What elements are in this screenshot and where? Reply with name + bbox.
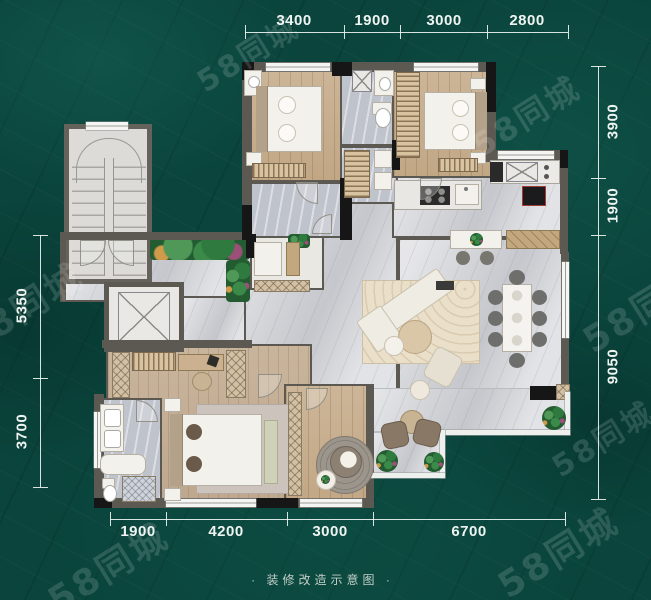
dining-chair [532, 290, 547, 305]
table-plant [321, 475, 330, 484]
dining-chair [488, 311, 503, 326]
wardrobe-bench [438, 158, 478, 172]
dining-chair [532, 311, 547, 326]
vanity-basin [104, 430, 121, 448]
dim-tick [591, 235, 606, 236]
entry-planter-vertical [226, 260, 250, 302]
dim-tick [568, 25, 569, 39]
dim-label: 3000 [300, 523, 360, 540]
terrace-railing [442, 430, 570, 435]
bed-bench [264, 420, 278, 484]
shower-area [122, 476, 156, 502]
wardrobe [396, 72, 420, 158]
dim-label: 1900 [342, 12, 402, 29]
dim-label: 3000 [414, 12, 474, 29]
island-plant [470, 233, 483, 246]
column-segment [486, 62, 496, 112]
bed-pillow [278, 124, 296, 142]
column-segment [256, 498, 298, 508]
ottoman [410, 380, 430, 400]
terrace-railing [565, 392, 570, 435]
wardrobe [288, 392, 302, 496]
dim-label: 1900 [605, 178, 622, 234]
column-segment [242, 205, 252, 240]
column-segment [530, 386, 558, 400]
window [414, 63, 478, 71]
elevator-cab [118, 292, 170, 342]
rattan-chair [330, 446, 362, 478]
window [86, 122, 128, 130]
dim-tick [591, 66, 606, 67]
wardrobe [112, 352, 130, 398]
stove-knob [544, 165, 549, 170]
window [266, 63, 330, 71]
kitchen-cabinet [490, 162, 503, 182]
bed-pillow [452, 100, 469, 117]
stove-knob [544, 174, 549, 179]
wall-segment [366, 384, 374, 504]
bed-double [170, 414, 262, 486]
dim-tick [33, 378, 48, 379]
bed-headboard [170, 414, 183, 486]
wall-segment [102, 340, 252, 348]
oven [506, 162, 538, 182]
dim-tick [287, 512, 288, 526]
window [562, 262, 569, 338]
stair-divider [104, 158, 114, 276]
bed-headboard [256, 86, 268, 152]
vanity-basin [104, 409, 121, 427]
bed-pillow [186, 424, 202, 440]
laundry-appliance [374, 150, 392, 168]
dim-tick [33, 235, 48, 236]
laundry-appliance [374, 172, 392, 190]
nightstand [164, 398, 181, 412]
terrace-plant [542, 406, 566, 430]
dim-label: 3900 [605, 94, 622, 150]
dim-label: 2800 [497, 12, 557, 29]
wall-segment [60, 232, 250, 240]
wardrobe-bench [252, 163, 306, 178]
entry-planter-horizontal [150, 238, 250, 260]
nightstand [470, 78, 486, 90]
dim-tick [487, 25, 488, 39]
side-table [384, 336, 404, 356]
window [300, 499, 362, 507]
bar-stool [480, 251, 494, 265]
dining-chair [532, 332, 547, 347]
media-console-item [436, 281, 454, 290]
dining-chair [488, 290, 503, 305]
bed-pillow [278, 96, 296, 114]
column-segment [560, 150, 568, 168]
dim-label: 6700 [439, 523, 499, 540]
sink-faucet [464, 187, 468, 191]
pantry-cabinet [286, 242, 300, 276]
pantry-appliance [254, 242, 282, 276]
desk-chair [192, 372, 212, 391]
dining-chair [509, 270, 525, 285]
laundry-shelving [344, 150, 370, 198]
dim-line [110, 519, 565, 520]
bathtub [100, 454, 146, 475]
dim-label: 3700 [14, 404, 31, 460]
dining-table [502, 284, 532, 352]
terrace-plant [424, 452, 444, 472]
refrigerator [522, 186, 546, 206]
column-segment [332, 62, 352, 76]
vanity-basin [379, 77, 391, 91]
wardrobe [132, 352, 176, 371]
terrace-railing [366, 473, 445, 478]
dim-tick [33, 487, 48, 488]
sideboard [506, 230, 560, 249]
floorplan-canvas: 3400 1900 3000 2800 3900 1900 9050 5350 … [0, 0, 651, 600]
dining-chair [509, 353, 525, 368]
wardrobe [226, 350, 246, 398]
bar-stool [456, 251, 470, 265]
dim-tick [373, 512, 374, 526]
pantry-lower-cabinets [254, 280, 310, 292]
dining-chair [488, 332, 503, 347]
dim-label: 4200 [196, 523, 256, 540]
nightstand [164, 488, 181, 501]
bed-pillow [186, 456, 202, 472]
toilet-bowl [103, 485, 117, 502]
toilet-bowl [375, 108, 391, 128]
terrace-plant [376, 450, 398, 472]
washing-machine [352, 70, 372, 92]
